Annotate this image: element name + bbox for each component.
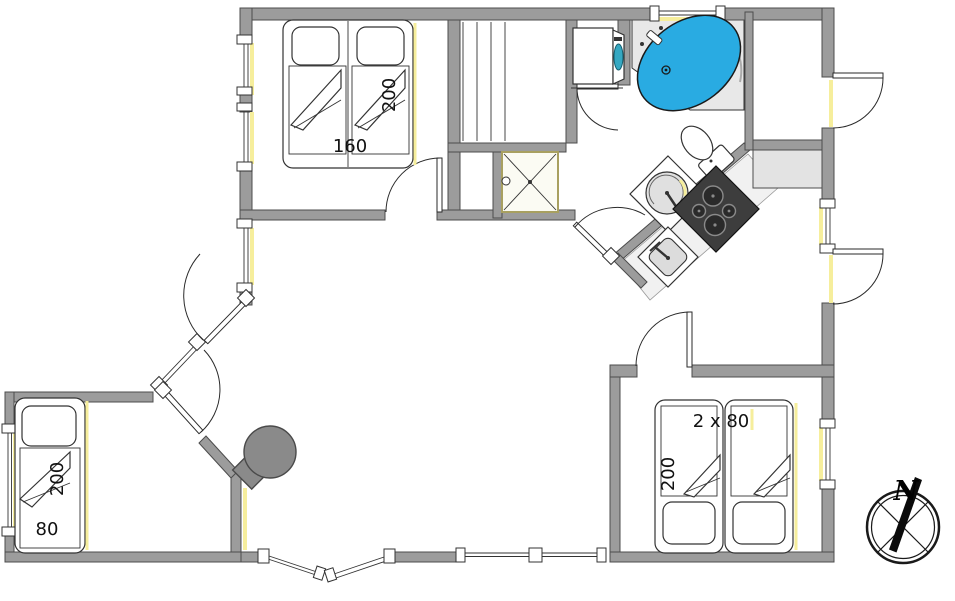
pillow [292, 27, 339, 65]
washing-machine [571, 28, 624, 88]
pillow [663, 502, 715, 544]
compass-north-label: N [893, 476, 920, 507]
bed-length-label-sw: 200 [47, 462, 68, 496]
bed-length-label-nw: 200 [379, 78, 400, 112]
bed-width-label-se: 2 x 80 [693, 411, 749, 432]
pillow [357, 27, 404, 65]
page-background [0, 0, 955, 601]
washer-door-icon [614, 44, 623, 70]
floor-plan-canvas: 160 200 80 200 2 x 80 200 N [0, 0, 955, 601]
closet [753, 150, 822, 188]
bed-length-label-se: 200 [658, 457, 679, 491]
bed-width-label-sw: 80 [36, 519, 59, 540]
pillow [733, 502, 785, 544]
pillow [22, 406, 76, 446]
floor-plan-page: 160 200 80 200 2 x 80 200 N [0, 0, 955, 601]
shower [502, 152, 558, 212]
bed-width-label-nw: 160 [333, 136, 367, 157]
